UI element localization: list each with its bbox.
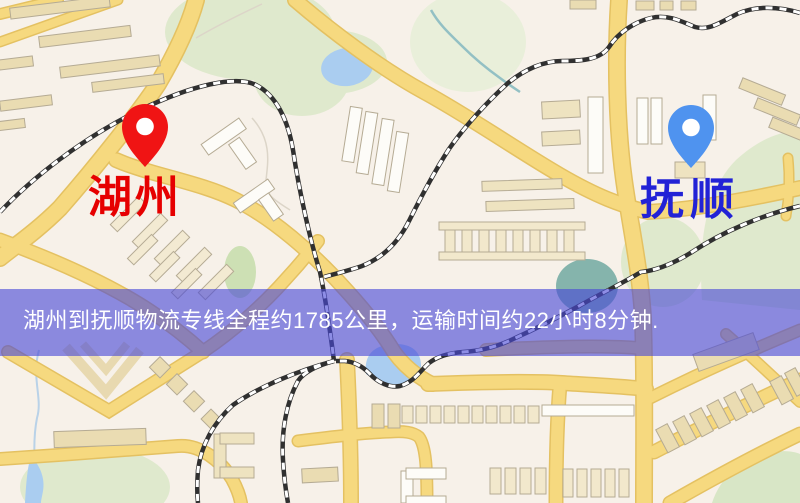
pin-shape bbox=[122, 104, 168, 167]
pin-shape bbox=[668, 105, 714, 168]
map-pin-icon bbox=[667, 104, 715, 170]
map-canvas bbox=[0, 0, 800, 503]
map-screenshot: 湖州 抚顺 湖州到抚顺物流专线全程约1785公里，运输时间约22小时8分钟. bbox=[0, 0, 800, 503]
map-pin-icon bbox=[121, 103, 169, 169]
origin-label: 湖州 bbox=[88, 176, 182, 220]
route-info-text: 湖州到抚顺物流专线全程约1785公里，运输时间约22小时8分钟. bbox=[23, 303, 659, 335]
route-info-banner: 湖州到抚顺物流专线全程约1785公里，运输时间约22小时8分钟. bbox=[0, 289, 800, 356]
pin-hole bbox=[682, 119, 700, 137]
pin-hole bbox=[136, 118, 154, 136]
origin-pin[interactable] bbox=[121, 103, 169, 169]
destination-label: 抚顺 bbox=[640, 178, 740, 222]
destination-pin[interactable] bbox=[667, 104, 715, 170]
